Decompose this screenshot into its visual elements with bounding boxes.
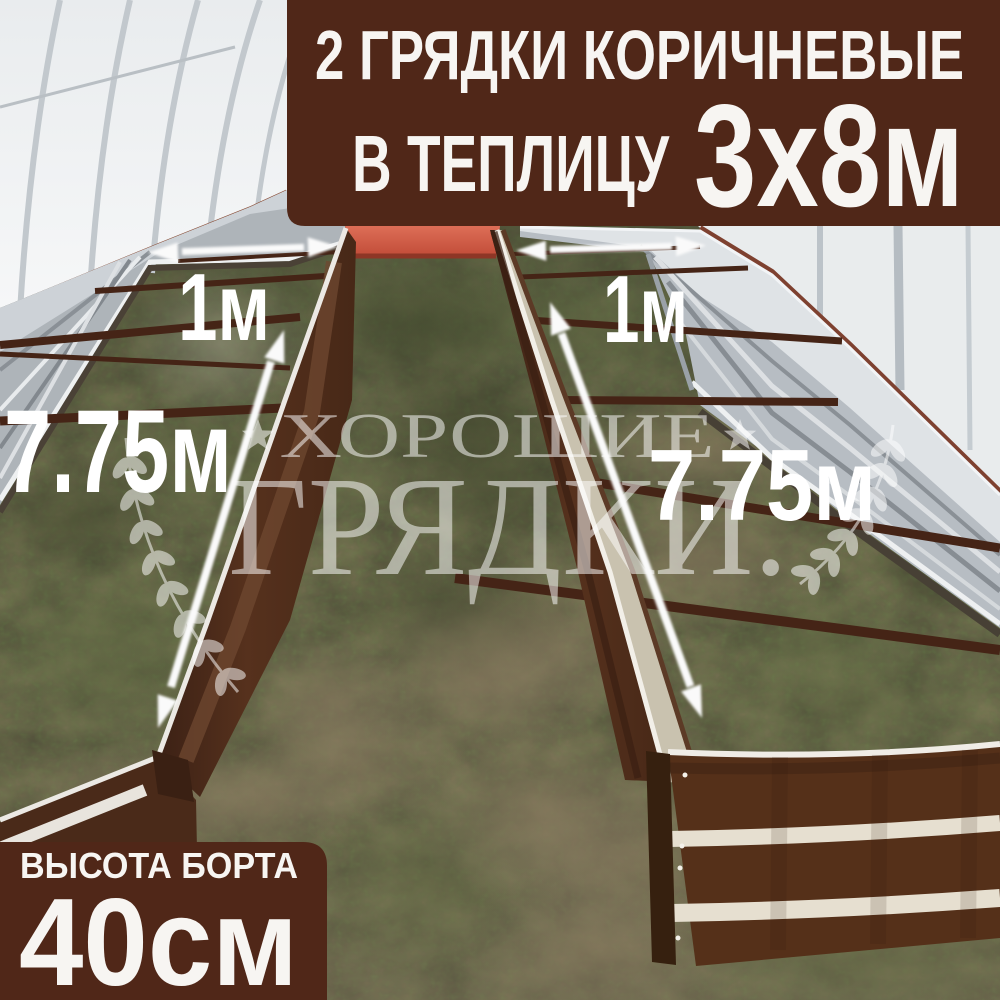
svg-text:7.75м: 7.75м <box>4 386 232 518</box>
svg-text:1м: 1м <box>178 254 270 361</box>
svg-text:В ТЕПЛИЦУ: В ТЕПЛИЦУ <box>352 119 670 208</box>
svg-text:3х8м: 3х8м <box>694 74 964 237</box>
svg-text:40см: 40см <box>19 874 298 1000</box>
svg-text:7.75м: 7.75м <box>648 430 876 542</box>
svg-text:1м: 1м <box>603 256 688 363</box>
